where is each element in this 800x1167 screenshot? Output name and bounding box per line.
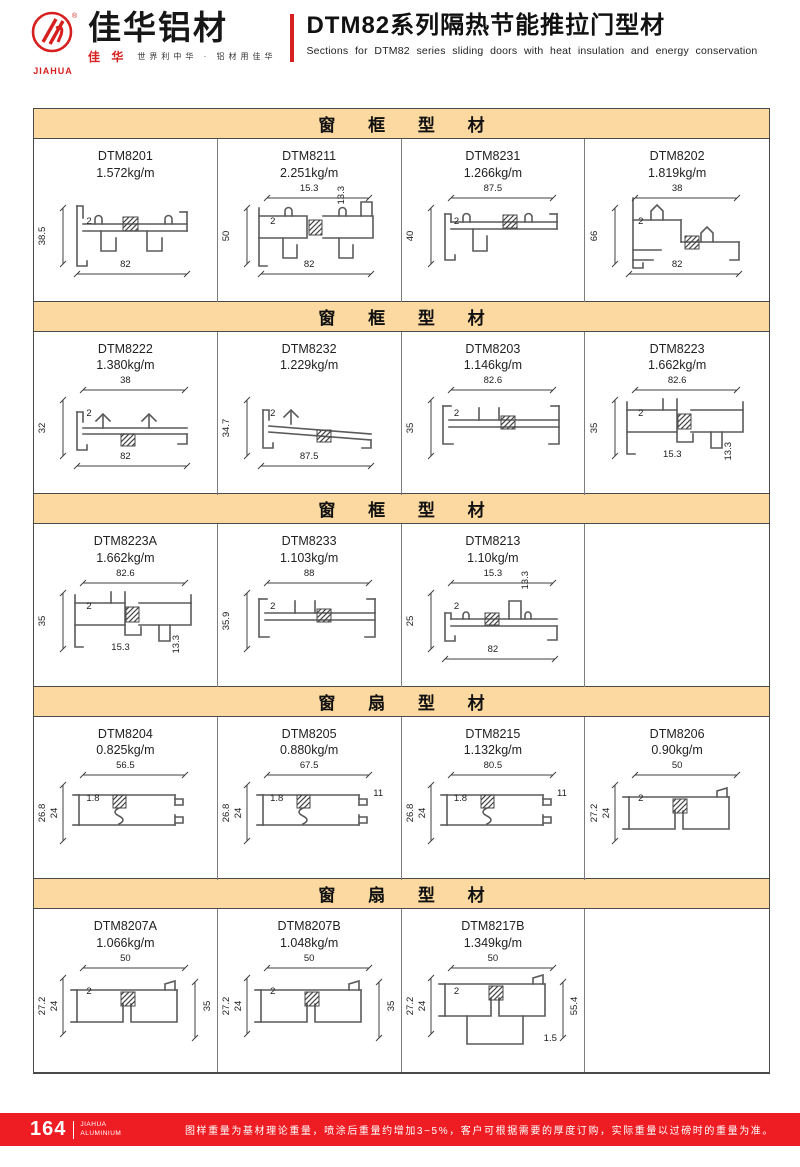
model-weight: 0.880kg/m <box>218 742 401 759</box>
model-weight: 1.132kg/m <box>402 742 585 759</box>
model-number: DTM8204 <box>34 726 217 743</box>
brand-block: 佳华铝材 佳 华 世界利中华 · 铝材用佳华 <box>88 10 276 65</box>
profile-table: 窗 框 型 材 DTM8201 1.572kg/m 38.5282 DTM821… <box>33 108 770 1074</box>
thermal-break-block <box>121 992 135 1006</box>
model-number: DTM8217B <box>402 918 585 935</box>
dimension-label: 2 <box>270 602 275 612</box>
profile-section-drawing <box>405 376 581 480</box>
dimension-label: 35 <box>387 1000 397 1011</box>
model-number: DTM8203 <box>402 341 585 358</box>
profile-cell: DTM8223A 1.662kg/m 82.635215.313.3 <box>34 524 218 687</box>
dimension-label: 24 <box>234 808 244 819</box>
dimension-label: 2 <box>270 987 275 997</box>
profile-drawing: 82.635215.313.3 <box>589 376 765 480</box>
profile-section-drawing <box>405 184 581 288</box>
profile-drawing: 34.7287.5 <box>221 376 397 480</box>
dimension-label: 2 <box>454 602 459 612</box>
thermal-break-block <box>481 795 494 808</box>
footer-brand-line2: ALUMINIUM <box>80 1130 121 1137</box>
thermal-break-block <box>503 215 517 228</box>
profile-cell: DTM8231 1.266kg/m 87.5240 <box>402 139 586 302</box>
dimension-label: 24 <box>234 1000 244 1011</box>
dimension-label: 82.6 <box>116 569 135 579</box>
profile-section: 窗 框 型 材 DTM8222 1.380kg/m 3823282 DTM823… <box>33 301 770 495</box>
model-number: DTM8205 <box>218 726 401 743</box>
profile-section-drawing <box>37 376 213 480</box>
thermal-break-block <box>126 607 139 622</box>
profile-section-drawing <box>589 184 765 288</box>
dimension-label: 55.4 <box>570 997 580 1016</box>
dimension-label: 2 <box>638 409 643 419</box>
profile-cell: DTM8213 1.10kg/m 15.313.325282 <box>402 524 586 687</box>
profile-section-drawing <box>405 569 581 673</box>
dimension-label: 11 <box>373 789 383 799</box>
dimension-label: 11 <box>557 789 567 799</box>
dimension-label: 1.8 <box>86 794 99 804</box>
dimension-label: 50 <box>488 954 499 964</box>
dimension-label: 2 <box>454 987 459 997</box>
model-weight: 1.066kg/m <box>34 935 217 952</box>
page-header: ® JIAHUA 佳华铝材 佳 华 世界利中华 · 铝材用佳华 DTM82系列隔… <box>26 10 772 88</box>
model-number: DTM8211 <box>218 148 401 165</box>
brand-tagline: 世界利中华 · 铝材用佳华 <box>137 51 276 62</box>
dimension-label: 35 <box>590 423 600 434</box>
dimension-label: 35 <box>38 615 48 626</box>
model-number: DTM8223A <box>34 533 217 550</box>
model-weight: 1.380kg/m <box>34 357 217 374</box>
dimension-label: 88 <box>304 569 315 579</box>
profile-drawing: 15.313.325282 <box>405 569 581 673</box>
dimension-label: 2 <box>86 217 91 227</box>
jiahua-logo-icon: ® <box>29 10 77 60</box>
dimension-label: 2 <box>270 217 275 227</box>
profile-cell: DTM8206 0.90kg/m 5027.2242 <box>585 717 769 880</box>
model-weight: 1.146kg/m <box>402 357 585 374</box>
profile-row: DTM8222 1.380kg/m 3823282 DTM8232 1.229k… <box>33 332 770 495</box>
thermal-break-block <box>489 986 503 1000</box>
dimension-label: 24 <box>418 1000 428 1011</box>
dimension-label: 1.5 <box>544 1034 557 1044</box>
dimension-label: 2 <box>454 217 459 227</box>
profile-section: 窗 扇 型 材 DTM8204 0.825kg/m 56.526.8241.8 … <box>33 686 770 880</box>
dimension-label: 15.3 <box>111 643 130 653</box>
dimension-label: 87.5 <box>484 184 503 194</box>
model-number: DTM8213 <box>402 533 585 550</box>
profile-drawing: 5027.224235 <box>221 954 397 1058</box>
profile-cell-empty <box>585 524 769 687</box>
dimension-label: 56.5 <box>116 761 135 771</box>
svg-text:®: ® <box>72 12 77 20</box>
model-number: DTM8223 <box>585 341 769 358</box>
dimension-label: 25 <box>406 615 416 626</box>
dimension-label: 26.8 <box>222 804 232 823</box>
profile-section-drawing <box>221 376 397 480</box>
dimension-label: 27.2 <box>222 997 232 1016</box>
dimension-label: 2 <box>638 217 643 227</box>
profile-section-drawing <box>589 376 765 480</box>
footer-bar: 164 JIAHUA ALUMINIUM 图样重量为基材理论重量，喷涂后重量约增… <box>0 1113 800 1146</box>
thermal-break-block <box>113 795 126 808</box>
dimension-label: 35 <box>203 1000 213 1011</box>
profile-drawing: 67.526.8241.811 <box>221 761 397 865</box>
profile-section-drawing <box>37 184 213 288</box>
thermal-break-block <box>123 217 138 231</box>
dimension-label: 82 <box>120 452 131 462</box>
profile-drawing: 82.635215.313.3 <box>37 569 213 673</box>
dimension-label: 24 <box>50 1000 60 1011</box>
model-weight: 0.90kg/m <box>585 742 769 759</box>
dimension-label: 82.6 <box>668 376 687 386</box>
profile-drawing: 5027.224255.41.5 <box>405 954 581 1058</box>
section-title: 窗 框 型 材 <box>33 493 770 524</box>
profile-cell: DTM8201 1.572kg/m 38.5282 <box>34 139 218 302</box>
footer-brand-line1: JIAHUA <box>80 1121 106 1128</box>
dimension-label: 66 <box>590 230 600 241</box>
dimension-label: 32 <box>38 423 48 434</box>
dimension-label: 1.8 <box>454 794 467 804</box>
thermal-break-block <box>305 992 319 1006</box>
page-subtitle: Sections for DTM82 series sliding doors … <box>306 45 772 57</box>
profile-row: DTM8223A 1.662kg/m 82.635215.313.3 DTM82… <box>33 524 770 687</box>
dimension-label: 1.8 <box>270 794 283 804</box>
dimension-label: 13.3 <box>521 571 531 590</box>
model-weight: 1.048kg/m <box>218 935 401 952</box>
dimension-label: 67.5 <box>300 761 319 771</box>
page-title: DTM82系列隔热节能推拉门型材 <box>306 12 772 41</box>
brand-mark-cn: 佳 华 <box>88 48 127 65</box>
model-weight: 1.662kg/m <box>34 550 217 567</box>
profile-drawing: 56.526.8241.8 <box>37 761 213 865</box>
profile-cell-empty <box>585 909 769 1072</box>
dimension-label: 24 <box>602 808 612 819</box>
dimension-label: 13.3 <box>724 442 734 461</box>
thermal-break-block <box>309 220 322 235</box>
profile-section-drawing <box>37 569 213 673</box>
dimension-label: 27.2 <box>590 804 600 823</box>
profile-cell: DTM8207B 1.048kg/m 5027.224235 <box>218 909 402 1072</box>
dimension-label: 15.3 <box>484 569 503 579</box>
thermal-break-block <box>317 430 331 442</box>
thermal-break-block <box>501 416 515 429</box>
profile-drawing: 3823282 <box>37 376 213 480</box>
thermal-break-block <box>121 434 135 446</box>
profile-section-drawing <box>221 954 397 1058</box>
profile-drawing: 15.313.325082 <box>221 184 397 288</box>
dimension-label: 26.8 <box>406 804 416 823</box>
profile-section-drawing <box>221 184 397 288</box>
profile-section: 窗 框 型 材 DTM8223A 1.662kg/m 82.635215.313… <box>33 493 770 687</box>
dimension-label: 2 <box>86 987 91 997</box>
model-number: DTM8201 <box>34 148 217 165</box>
profile-cell: DTM8215 1.132kg/m 80.526.8241.811 <box>402 717 586 880</box>
thermal-break-block <box>317 609 331 622</box>
dimension-label: 13.3 <box>172 635 182 654</box>
profile-cell: DTM8211 2.251kg/m 15.313.325082 <box>218 139 402 302</box>
profile-cell: DTM8232 1.229kg/m 34.7287.5 <box>218 332 402 495</box>
profile-cell: DTM8205 0.880kg/m 67.526.8241.811 <box>218 717 402 880</box>
dimension-label: 82 <box>672 260 683 270</box>
dimension-label: 24 <box>418 808 428 819</box>
dimension-label: 2 <box>86 409 91 419</box>
profile-section-drawing <box>405 761 581 865</box>
dimension-label: 82 <box>304 260 315 270</box>
model-number: DTM8215 <box>402 726 585 743</box>
dimension-label: 87.5 <box>300 452 319 462</box>
profile-cell: DTM8207A 1.066kg/m 5027.224235 <box>34 909 218 1072</box>
brand-en: JIAHUA <box>26 66 80 76</box>
profile-cell: DTM8223 1.662kg/m 82.635215.313.3 <box>585 332 769 495</box>
section-title: 窗 扇 型 材 <box>33 878 770 909</box>
brand-name-cn: 佳华铝材 <box>88 10 276 46</box>
model-weight: 0.825kg/m <box>34 742 217 759</box>
footer-brand: JIAHUA ALUMINIUM <box>80 1121 121 1137</box>
profile-drawing: 82.6352 <box>405 376 581 480</box>
model-number: DTM8233 <box>218 533 401 550</box>
profile-drawing: 38.5282 <box>37 184 213 288</box>
dimension-label: 82.6 <box>484 376 503 386</box>
thermal-break-block <box>485 613 499 625</box>
dimension-label: 27.2 <box>38 997 48 1016</box>
dimension-label: 40 <box>406 230 416 241</box>
profile-row: DTM8201 1.572kg/m 38.5282 DTM8211 2.251k… <box>33 139 770 302</box>
profile-section-drawing <box>37 954 213 1058</box>
title-block: DTM82系列隔热节能推拉门型材 Sections for DTM82 seri… <box>306 10 772 57</box>
dimension-label: 35.9 <box>222 612 232 631</box>
header-divider <box>290 14 294 62</box>
profile-cell: DTM8202 1.819kg/m 3866282 <box>585 139 769 302</box>
model-number: DTM8207A <box>34 918 217 935</box>
dimension-label: 27.2 <box>406 997 416 1016</box>
dimension-label: 35 <box>406 423 416 434</box>
company-logo: ® JIAHUA <box>26 10 80 76</box>
model-number: DTM8206 <box>585 726 769 743</box>
thermal-break-block <box>678 414 691 429</box>
profile-cell: DTM8233 1.103kg/m 8835.92 <box>218 524 402 687</box>
dimension-label: 34.7 <box>222 419 232 438</box>
profile-section-drawing <box>589 761 765 865</box>
dimension-label: 2 <box>86 602 91 612</box>
model-number: DTM8222 <box>34 341 217 358</box>
model-weight: 1.229kg/m <box>218 357 401 374</box>
dimension-label: 24 <box>50 808 60 819</box>
model-weight: 1.349kg/m <box>402 935 585 952</box>
dimension-label: 15.3 <box>663 450 682 460</box>
model-weight: 1.572kg/m <box>34 165 217 182</box>
dimension-label: 50 <box>672 761 683 771</box>
thermal-break-block <box>673 799 687 813</box>
profile-drawing: 80.526.8241.811 <box>405 761 581 865</box>
model-number: DTM8232 <box>218 341 401 358</box>
dimension-label: 38 <box>120 376 131 386</box>
profile-section: 窗 框 型 材 DTM8201 1.572kg/m 38.5282 DTM821… <box>33 108 770 302</box>
dimension-label: 15.3 <box>300 184 319 194</box>
profile-section: 窗 扇 型 材 DTM8207A 1.066kg/m 5027.224235 D… <box>33 878 770 1072</box>
profile-section-drawing <box>221 569 397 673</box>
profile-cell: DTM8203 1.146kg/m 82.6352 <box>402 332 586 495</box>
model-weight: 2.251kg/m <box>218 165 401 182</box>
model-number: DTM8207B <box>218 918 401 935</box>
dimension-label: 38 <box>672 184 683 194</box>
footer-note: 图样重量为基材理论重量，喷涂后重量约增加3~5%，客户可根据需要的厚度订购，实际… <box>185 1122 774 1137</box>
profile-row: DTM8204 0.825kg/m 56.526.8241.8 DTM8205 … <box>33 717 770 880</box>
profile-row: DTM8207A 1.066kg/m 5027.224235 DTM8207B … <box>33 909 770 1072</box>
dimension-label: 13.3 <box>337 186 347 205</box>
profile-section-drawing <box>37 761 213 865</box>
thermal-break-block <box>297 795 310 808</box>
section-title: 窗 框 型 材 <box>33 108 770 139</box>
dimension-label: 26.8 <box>38 804 48 823</box>
profile-drawing: 87.5240 <box>405 184 581 288</box>
model-number: DTM8231 <box>402 148 585 165</box>
dimension-label: 50 <box>120 954 131 964</box>
profile-cell: DTM8204 0.825kg/m 56.526.8241.8 <box>34 717 218 880</box>
model-weight: 1.10kg/m <box>402 550 585 567</box>
dimension-label: 38.5 <box>38 227 48 246</box>
page-number: 164 <box>30 1118 66 1141</box>
model-weight: 1.819kg/m <box>585 165 769 182</box>
thermal-break-block <box>685 236 699 249</box>
dimension-label: 82 <box>488 645 499 655</box>
dimension-label: 82 <box>120 260 131 270</box>
model-weight: 1.266kg/m <box>402 165 585 182</box>
footer-separator <box>73 1121 74 1139</box>
model-weight: 1.103kg/m <box>218 550 401 567</box>
profile-cell: DTM8217B 1.349kg/m 5027.224255.41.5 <box>402 909 586 1072</box>
profile-drawing: 5027.224235 <box>37 954 213 1058</box>
dimension-label: 2 <box>638 794 643 804</box>
model-weight: 1.662kg/m <box>585 357 769 374</box>
profile-cell: DTM8222 1.380kg/m 3823282 <box>34 332 218 495</box>
profile-drawing: 8835.92 <box>221 569 397 673</box>
profile-section-drawing <box>221 761 397 865</box>
section-title: 窗 扇 型 材 <box>33 686 770 717</box>
profile-drawing: 5027.2242 <box>589 761 765 865</box>
dimension-label: 2 <box>270 409 275 419</box>
dimension-label: 80.5 <box>484 761 503 771</box>
profile-drawing: 3866282 <box>589 184 765 288</box>
dimension-label: 2 <box>454 409 459 419</box>
model-number: DTM8202 <box>585 148 769 165</box>
section-title: 窗 框 型 材 <box>33 301 770 332</box>
dimension-label: 50 <box>304 954 315 964</box>
dimension-label: 50 <box>222 230 232 241</box>
